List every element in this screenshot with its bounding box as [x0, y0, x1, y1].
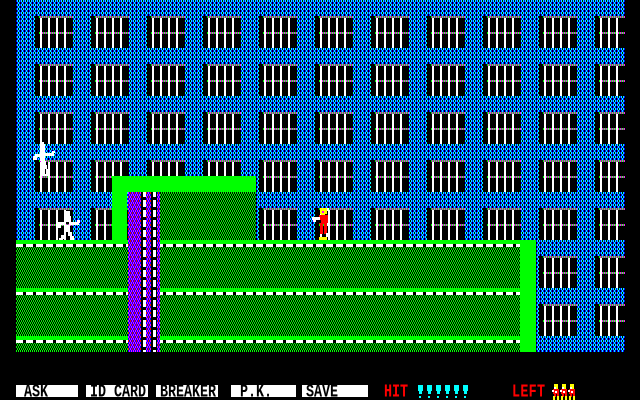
svg-text:BREAKER: BREAKER — [160, 382, 216, 400]
svg-text:P.K.: P.K. — [240, 382, 272, 400]
svg-text:ID CARD: ID CARD — [90, 382, 146, 400]
svg-text:ASK: ASK — [24, 382, 48, 400]
svg-text:HIT: HIT — [384, 382, 408, 400]
svg-text:LEFT: LEFT — [512, 382, 545, 400]
svg-text:SAVE: SAVE — [306, 382, 338, 400]
